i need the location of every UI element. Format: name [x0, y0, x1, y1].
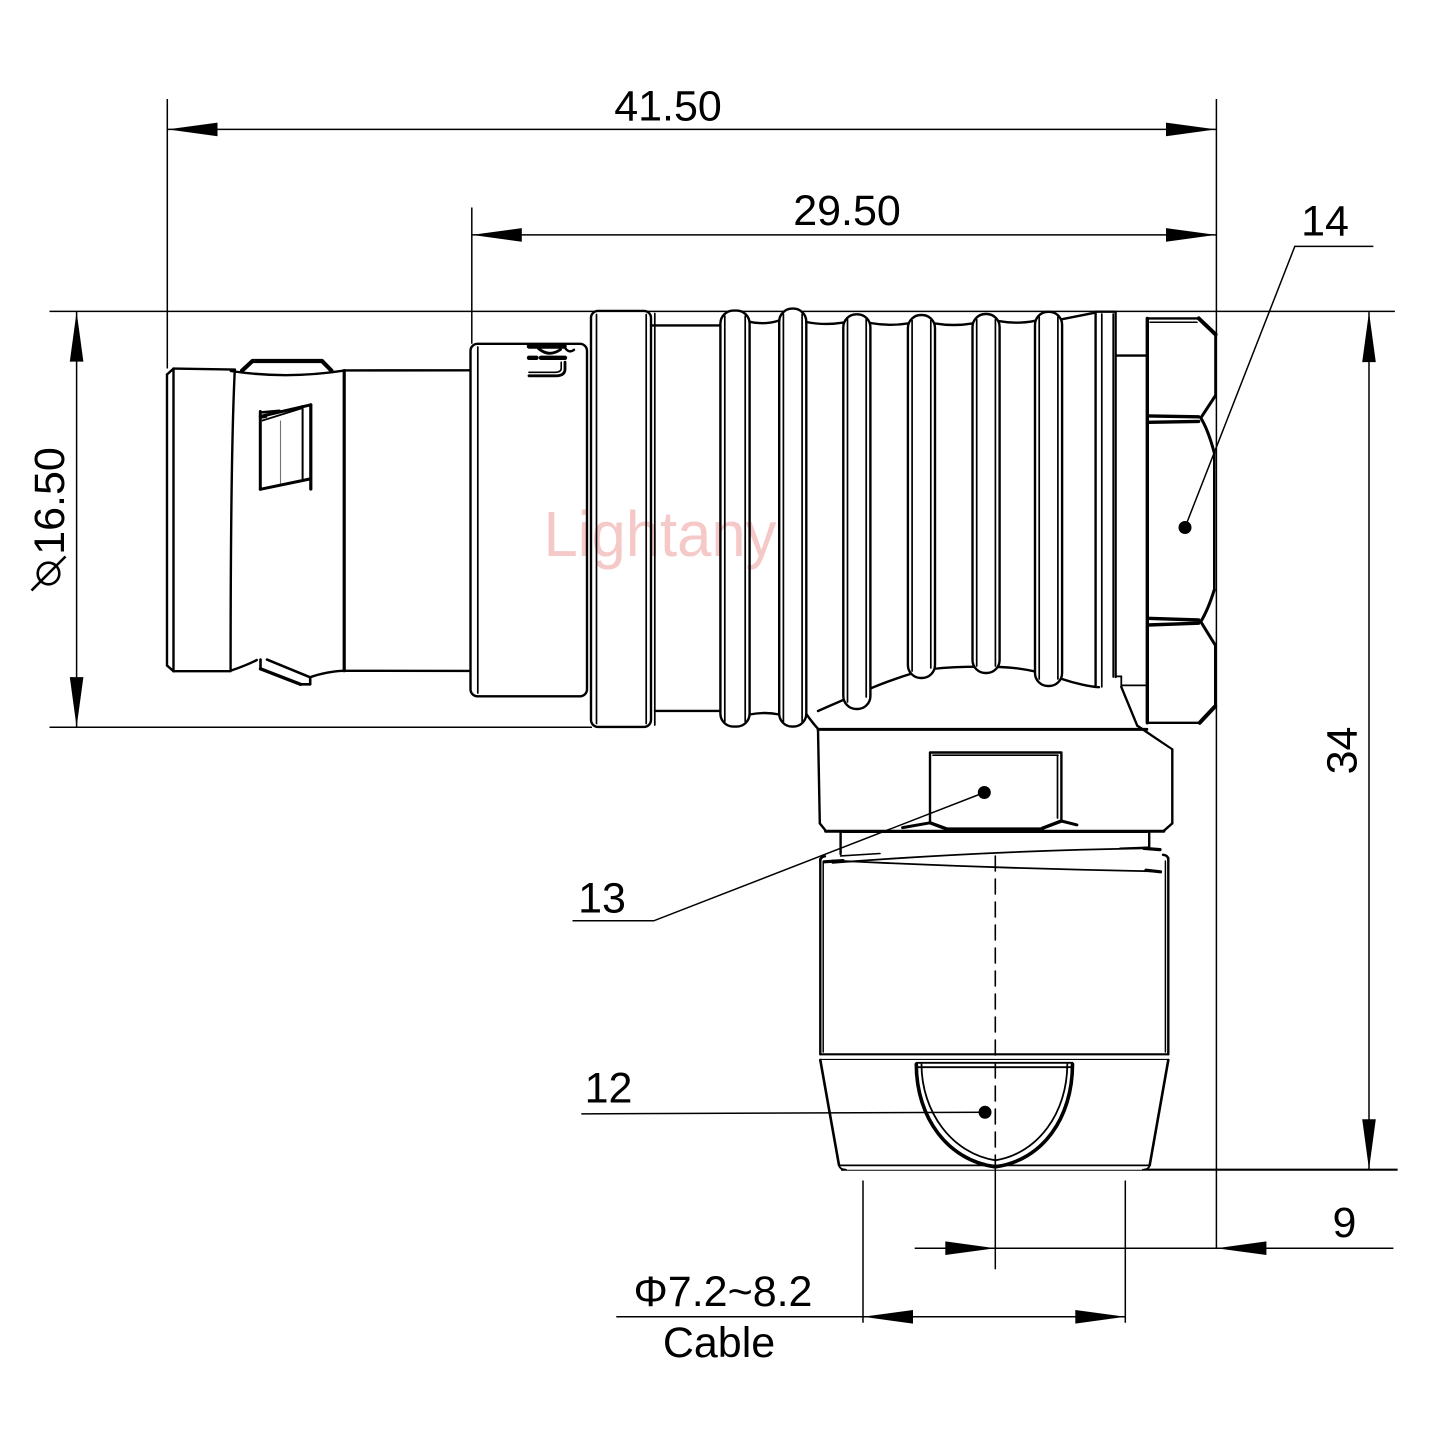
- svg-text:Cable: Cable: [663, 1319, 775, 1367]
- svg-text:34: 34: [1319, 727, 1367, 775]
- svg-text:12: 12: [585, 1065, 633, 1113]
- svg-text:13: 13: [578, 875, 626, 923]
- svg-text:16.50: 16.50: [26, 447, 74, 555]
- svg-text:14: 14: [1301, 198, 1349, 246]
- svg-text:9: 9: [1333, 1199, 1357, 1247]
- svg-text:41.50: 41.50: [614, 83, 722, 131]
- svg-text:Lightany: Lightany: [544, 498, 777, 570]
- svg-text:29.50: 29.50: [793, 187, 901, 235]
- svg-text:Φ7.2~8.2: Φ7.2~8.2: [634, 1268, 813, 1316]
